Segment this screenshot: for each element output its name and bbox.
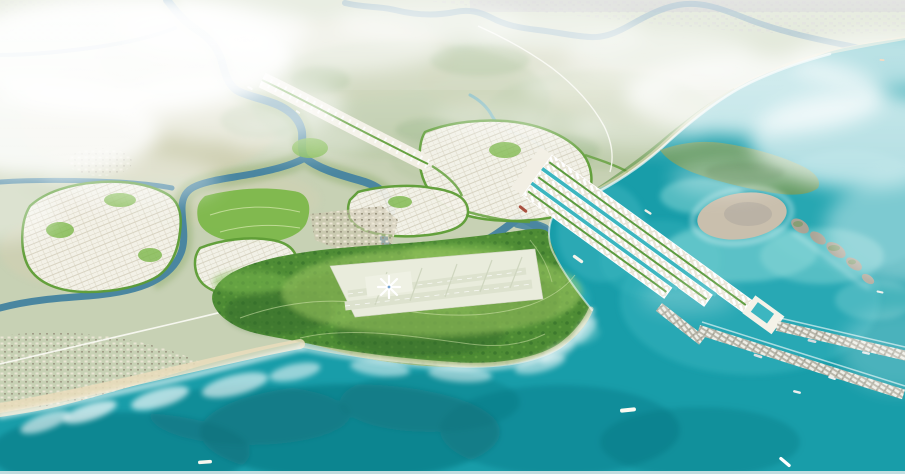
aerial-scene: Aerial bird's-eye rendering of a coastal… <box>0 0 905 474</box>
tan-island-flats <box>724 202 772 226</box>
atmospheric-veil <box>0 0 905 170</box>
star-terminal <box>378 276 400 298</box>
terminal-roof-accent <box>388 286 391 289</box>
central-park <box>197 189 309 244</box>
masterplan-aerial-rendering: Aerial bird's-eye rendering of a coastal… <box>0 0 905 474</box>
river-mouth <box>518 222 544 230</box>
